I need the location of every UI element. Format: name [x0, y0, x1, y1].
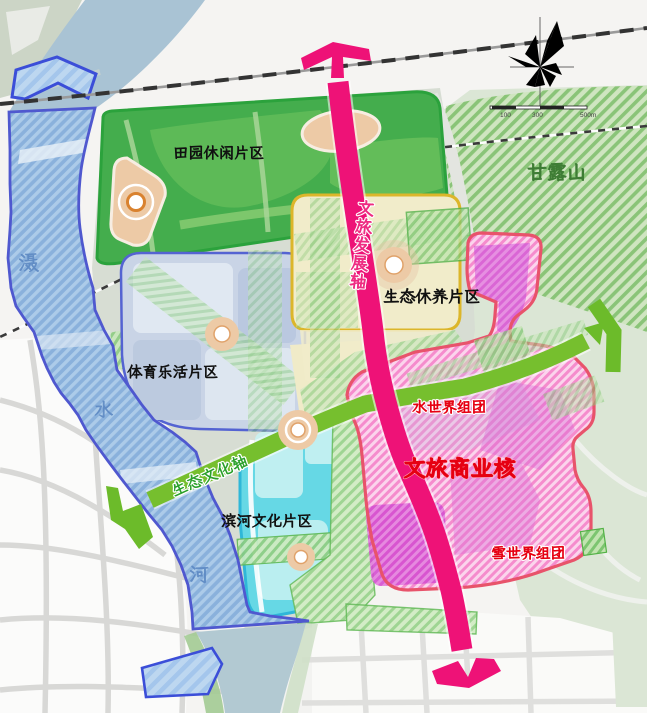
svg-text:300: 300 — [532, 112, 543, 119]
svg-text:100: 100 — [500, 112, 511, 119]
svg-text:500m: 500m — [580, 112, 596, 119]
